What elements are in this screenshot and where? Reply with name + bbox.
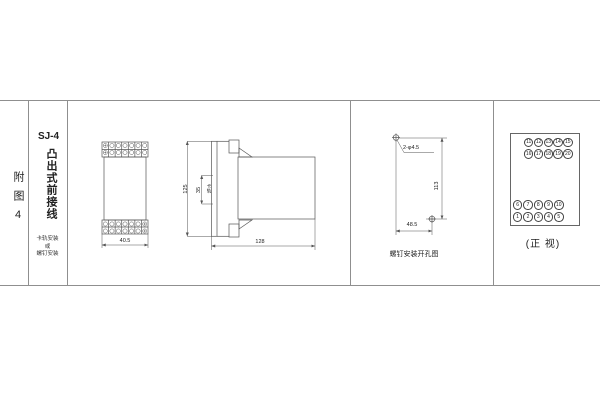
terminal-circle: 12 — [534, 138, 543, 147]
terminal-circle: 5 — [554, 212, 563, 221]
terminal-circle: 2 — [523, 212, 532, 221]
terminal-circle: 13 — [544, 138, 553, 147]
hole-vertical-dim: 113 — [432, 176, 442, 196]
divider-4 — [493, 100, 494, 285]
relay-front-dim-drawing — [95, 132, 157, 252]
front-width-dim: 40.5 — [110, 239, 140, 245]
terminal-row-6-10: 6 7 8 9 10 — [513, 200, 564, 209]
terminal-row-1-5: 1 2 3 4 5 — [513, 212, 564, 221]
hole-spec-label: 2-φ4.5 — [403, 146, 433, 152]
mounting-note-line: 或 — [28, 244, 67, 252]
mounting-note-line: 卡轨安装 — [28, 236, 67, 244]
band-bottom-line — [0, 285, 600, 286]
front-view-caption: (正 视) — [512, 235, 574, 250]
terminal-circle: 15 — [563, 138, 572, 147]
terminal-circle: 3 — [534, 212, 543, 221]
figure-number-label: 附图4 — [10, 171, 26, 229]
terminal-row-11-15: 11 12 13 14 15 — [524, 138, 573, 147]
hole-horizontal-dim: 48.5 — [397, 223, 427, 229]
terminal-circle: 18 — [544, 149, 553, 158]
band-top-line — [0, 100, 600, 101]
terminal-circle: 20 — [563, 149, 572, 158]
terminal-circle: 19 — [553, 149, 562, 158]
divider-3 — [350, 100, 351, 285]
terminal-row-16-20: 16 17 18 19 20 — [524, 149, 573, 158]
side-height-dim: 125 — [181, 179, 191, 199]
terminal-circle: 17 — [534, 149, 543, 158]
mounting-note-line: 螺钉安装 — [28, 251, 67, 259]
terminal-circle: 10 — [554, 200, 563, 209]
mounting-note: 卡轨安装 或 螺钉安装 — [28, 236, 67, 259]
terminal-circle: 6 — [513, 200, 522, 209]
terminal-circle: 14 — [553, 138, 562, 147]
terminal-circle: 7 — [523, 200, 532, 209]
terminal-circle: 1 — [513, 212, 522, 221]
hole-diagram-caption: 螺钉安装开孔图 — [384, 249, 444, 259]
terminal-circle: 11 — [524, 138, 533, 147]
side-rail-dim: 35 — [194, 180, 204, 200]
terminal-circle: 8 — [534, 200, 543, 209]
side-rail-label: 卡轨 — [206, 184, 212, 193]
side-depth-dim: 128 — [245, 240, 275, 246]
terminal-circle: 9 — [544, 200, 553, 209]
wiring-type-label: 凸出式前接线 — [43, 148, 59, 220]
model-label: SJ-4 — [30, 131, 67, 142]
divider-2 — [67, 100, 68, 285]
terminal-circle: 16 — [524, 149, 533, 158]
drawing-sheet: 附图4 SJ-4 凸出式前接线 卡轨安装 或 螺钉安装 — [0, 0, 600, 400]
terminal-circle: 4 — [544, 212, 553, 221]
